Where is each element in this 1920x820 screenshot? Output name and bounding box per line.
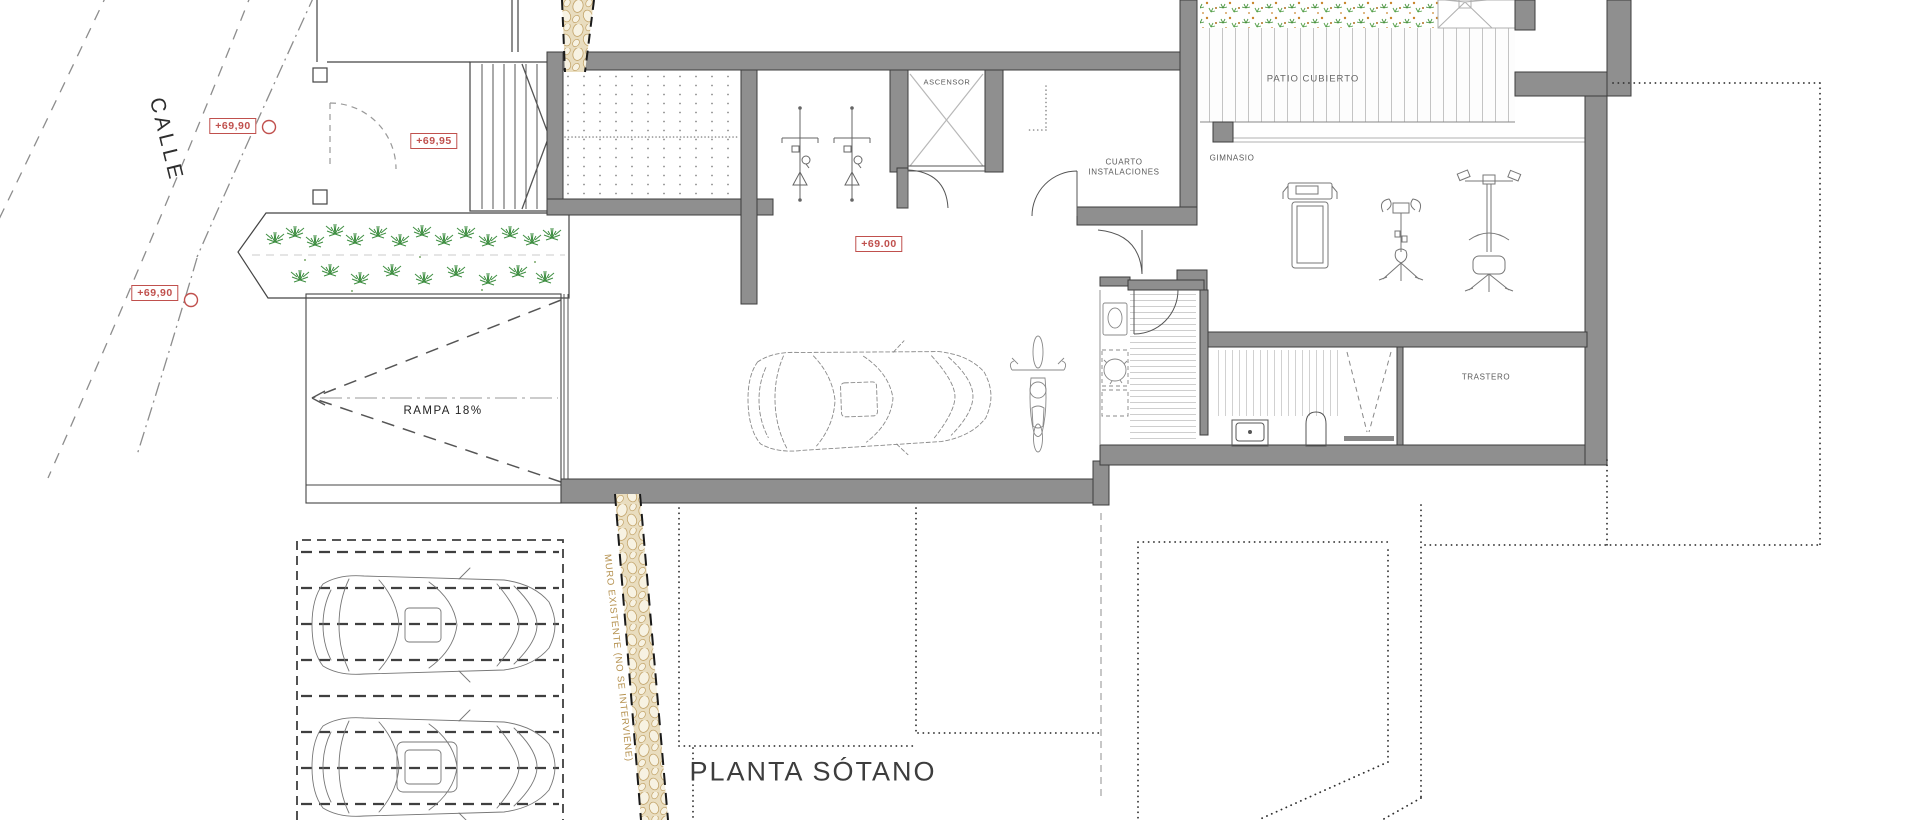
wall-laundry-left [1100,277,1130,286]
skylight [1438,0,1515,28]
garage-counter [1100,290,1128,445]
door-corridor [1098,230,1142,274]
level-street-upper: +69,90 [209,118,256,134]
wall-top [547,52,1197,70]
pulldown-machine [1457,170,1520,292]
wall-step [1093,461,1109,505]
patio-vegetation [1200,0,1438,28]
ramp-label: RAMPA 18% [403,405,482,417]
wall-gym-divider [1180,0,1197,225]
level-street-lower: +69,90 [131,285,178,301]
gym-equipment [1283,170,1521,292]
exercise-machine [1379,199,1423,281]
dotted-storage-floor [563,70,741,199]
elevator-label: ASCENSOR [924,78,971,87]
wall-elevator-right [985,70,1003,172]
elevator-shaft [908,74,985,171]
treadmill [1283,183,1337,268]
wall-bath-divider [1200,290,1208,435]
gym-label: GIMNASIO [1210,154,1255,163]
level-entry: +69,95 [410,133,457,149]
wall-garage-left [741,70,757,304]
wall-laundry-top [1128,280,1204,290]
floor-plan-drawing [0,0,1920,820]
wall-lobby-stub [897,168,908,208]
door-lobby [908,170,948,208]
toilet [1306,412,1326,446]
wall-left-upper [547,52,563,215]
plumbing-risers [782,107,870,202]
wall-utilities-bottom [1077,207,1197,225]
wall-sanitary-bottom [1100,445,1607,465]
bathroom-tiles [1212,350,1340,416]
gym-glazing-line [1213,138,1585,142]
wall-right [1585,96,1607,465]
patio-label: PATIO CUBIERTO [1267,74,1359,85]
wall-gym-bottom [1205,332,1587,347]
shower [1344,352,1394,441]
entry-hall [313,0,518,204]
utilities-label-line1: CUARTO [1105,158,1142,167]
level-basement: +69.00 [855,236,902,252]
garage-ramp [306,294,568,503]
door-utilities [1032,171,1077,216]
storage-label: TRASTERO [1462,373,1510,382]
wall-storage-divider [1397,347,1403,445]
laundry-floor [1130,290,1196,440]
wall-storage-bottom [547,199,773,215]
utilities-label-line2: INSTALACIONES [1088,168,1159,177]
plan-title: PLANTA SÓTANO [689,757,936,788]
wall-topright-v [1607,0,1631,96]
riser-symbol [834,107,870,202]
wall-gym-stub [1213,122,1233,142]
utilities-label: CUARTO INSTALACIONES [1088,158,1159,179]
wall-topright-stub [1515,0,1535,30]
motorcycle [1010,336,1065,452]
wall-elevator-left [890,70,908,172]
platform-rails [301,552,559,804]
planter-bed [238,213,569,298]
parking-platform [297,540,563,820]
garage-car [746,338,993,460]
wall-garage-bottom [561,479,1107,503]
floor-plan-page: CALLE +69,90 +69,95 +69,90 +69.00 ASCENS… [0,0,1920,820]
staircase [470,62,550,211]
wall-topright-h [1515,72,1607,96]
riser-symbol [782,107,818,202]
